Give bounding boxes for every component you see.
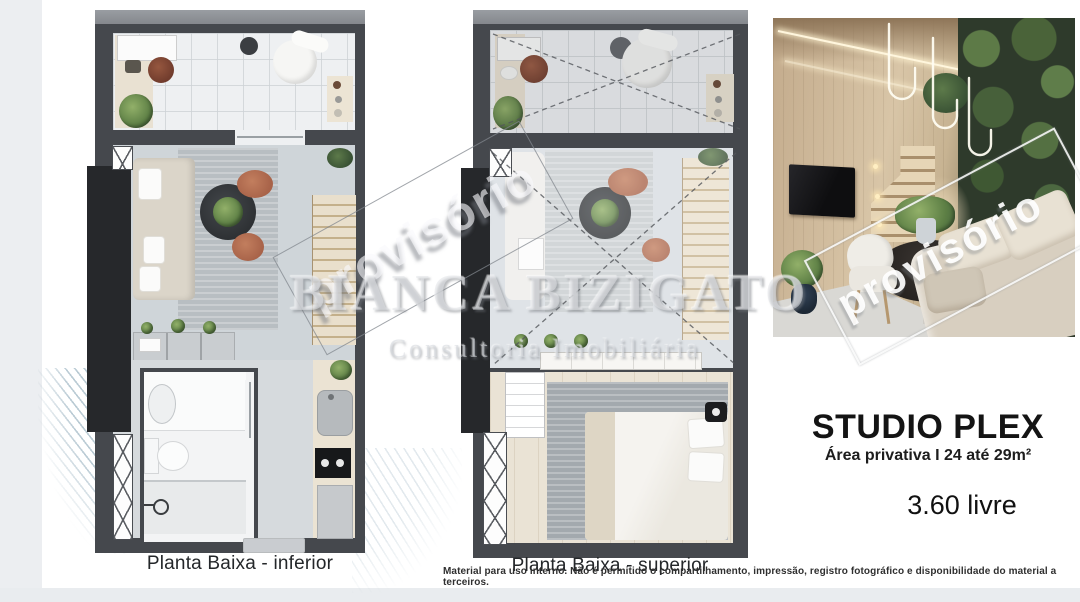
tree (574, 334, 588, 348)
bathroom (140, 368, 258, 546)
room-void-entry (490, 30, 733, 133)
plant (203, 321, 216, 334)
bed-blanket (585, 412, 615, 540)
shower-drain (153, 499, 169, 515)
left-margin-strip (0, 0, 42, 602)
facade-panel (87, 166, 131, 432)
faucet (328, 394, 334, 400)
pendant-dot (240, 37, 258, 55)
burner (336, 459, 344, 467)
shower-arm (144, 504, 154, 506)
room-bedroom (490, 372, 733, 543)
floorplan-inferior (95, 10, 365, 553)
stair-light (877, 222, 882, 227)
table-plant (213, 197, 243, 227)
vase (916, 218, 936, 244)
tv (705, 402, 727, 422)
shaft-xbox (489, 148, 512, 177)
studio-ceiling-height: 3.60 livre (812, 490, 1080, 521)
studio-title: STUDIO PLEX (778, 408, 1078, 447)
coffee-bar (706, 74, 734, 122)
studio-area: Área privativa I 24 até 29m² (778, 447, 1078, 465)
foliage (923, 73, 969, 113)
kitchen-sink (317, 390, 353, 436)
wardrobe (505, 372, 545, 438)
bottom-margin-strip (0, 588, 1080, 602)
room-void-living (490, 148, 733, 368)
potted-plant (781, 250, 823, 288)
round-table (148, 57, 174, 83)
cup (335, 96, 342, 103)
pouf (232, 233, 264, 261)
sofa-pillow (138, 168, 162, 200)
coffee-bar (327, 76, 353, 122)
facade-panel (461, 168, 490, 433)
plant (141, 322, 153, 334)
round-table (520, 55, 548, 83)
plant-pot (791, 284, 817, 314)
tray (139, 338, 161, 352)
bed-pillow (687, 451, 725, 483)
caption-plan-inferior: Planta Baixa - inferior (95, 553, 385, 575)
shaft-xbox (113, 434, 133, 540)
plant (119, 94, 153, 128)
tv-screen (789, 164, 855, 217)
void-wash (490, 148, 733, 368)
tree (514, 334, 528, 348)
plant (327, 148, 353, 168)
sink (148, 384, 176, 424)
tv-dot (712, 408, 720, 416)
cup (333, 81, 341, 89)
tree (544, 334, 558, 348)
burner (321, 459, 329, 467)
cooktop (315, 448, 351, 478)
marketing-sheet: provisório BIANCA BIZIGATO Consultoria I… (0, 0, 1080, 602)
door-mat (243, 538, 305, 553)
staircase (312, 195, 356, 345)
washer (117, 35, 177, 61)
shaft-xbox (112, 146, 133, 170)
plant (330, 360, 352, 380)
stair-light (875, 194, 880, 199)
plant (171, 319, 185, 333)
disclaimer-text: Material para uso interno. Não é permiti… (443, 566, 1080, 588)
cup (714, 109, 722, 117)
bath-door-line (249, 382, 251, 438)
sofa-pillow (139, 266, 161, 292)
door-glass-line (237, 136, 303, 138)
kitchen-counter (313, 360, 355, 538)
stair-light (873, 164, 878, 169)
plant (493, 96, 523, 130)
cup (713, 80, 721, 88)
room-entry (113, 33, 355, 130)
sofa-pillow (143, 236, 165, 264)
interior-render-photo (773, 18, 1075, 337)
dish (500, 66, 518, 80)
cup (715, 96, 722, 103)
room-living (113, 145, 355, 360)
toilet-bowl (157, 441, 189, 471)
laundry-sink (125, 60, 141, 73)
closet-row (540, 352, 702, 370)
dining-chair-seat (849, 266, 897, 292)
fridge (317, 485, 353, 539)
pouf (237, 170, 273, 198)
cup (334, 109, 342, 117)
shaft-xbox (483, 432, 507, 545)
